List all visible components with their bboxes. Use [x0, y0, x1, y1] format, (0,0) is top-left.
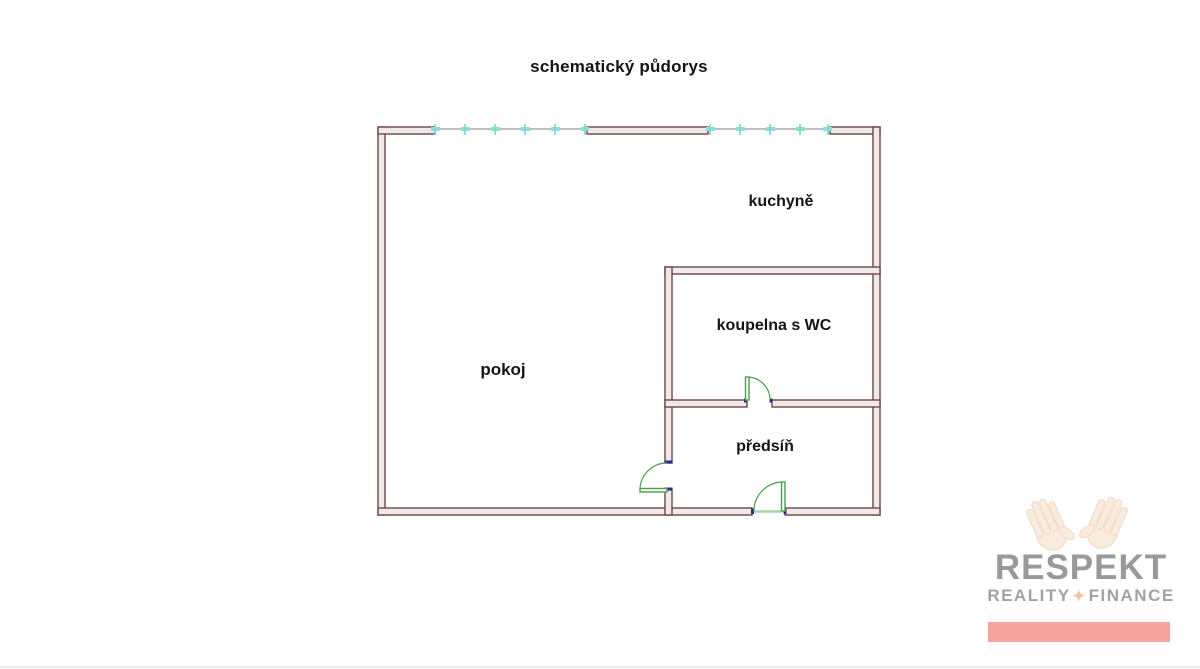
hall-door-icon [640, 461, 673, 493]
room-label-kitchen: kuchyně [701, 193, 861, 211]
page-title: schematický půdorys [359, 57, 879, 77]
room-label-hallway: předsíň [685, 438, 845, 456]
entrance-door-icon [751, 482, 787, 514]
bottom-edge-line [0, 666, 1200, 668]
hands-icon [1007, 480, 1147, 558]
logo: RESPEKT REALITY✦FINANCE [985, 478, 1177, 648]
logo-tagline: REALITY✦FINANCE [985, 586, 1177, 606]
window-left-icon [431, 124, 589, 135]
logo-bar [988, 622, 1170, 642]
window-right-icon [706, 124, 832, 135]
bathroom-door-icon [744, 377, 773, 403]
logo-tagline-right: FINANCE [1089, 586, 1175, 605]
interior-walls [665, 267, 880, 515]
logo-brand: RESPEKT [985, 548, 1177, 588]
logo-tagline-left: REALITY [987, 586, 1070, 605]
page: schematický půdorys [0, 0, 1200, 669]
star-icon: ✦ [1071, 588, 1089, 605]
room-label-bathroom: koupelna s WC [694, 317, 854, 335]
room-label-room: pokoj [423, 360, 583, 380]
